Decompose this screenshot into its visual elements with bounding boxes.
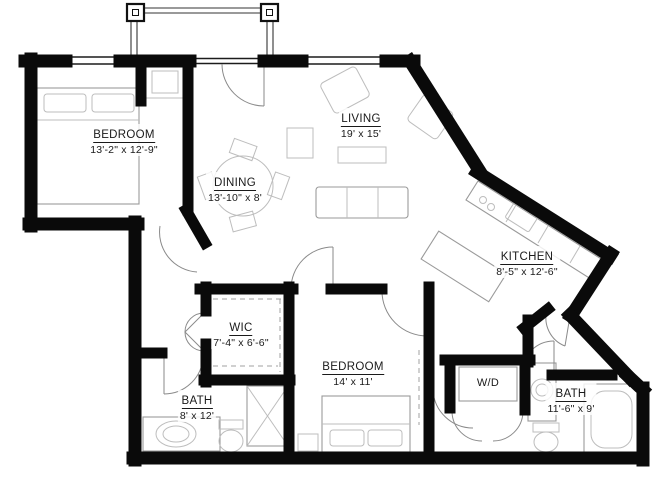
floor-plan: BEDROOM 13'-2" x 12'-9" LIVING 19' x 15'… xyxy=(0,0,670,480)
room-name: DINING xyxy=(214,176,256,191)
room-dims: 7'-4" x 6'-6" xyxy=(213,337,269,350)
room-name: BATH xyxy=(181,394,212,409)
room-dims: 14' x 11' xyxy=(322,376,384,389)
room-name: WIC xyxy=(229,321,252,336)
room-label-bath-2: BATH 11'-6" x 9' xyxy=(545,383,596,415)
room-label-bedroom-2: BEDROOM 14' x 11' xyxy=(320,356,386,388)
washer-dryer-label: W/D xyxy=(477,377,499,389)
room-name: KITCHEN xyxy=(501,250,554,265)
room-dims: 8'-5" x 12'-6" xyxy=(496,266,558,279)
room-label-bath-1: BATH 8' x 12' xyxy=(178,390,216,422)
room-name: LIVING xyxy=(341,112,381,127)
room-label-kitchen: KITCHEN 8'-5" x 12'-6" xyxy=(494,246,560,278)
windows xyxy=(65,57,388,64)
toilet xyxy=(219,420,243,429)
room-name: BEDROOM xyxy=(93,128,155,143)
room-dims: 13'-10" x 8' xyxy=(208,192,262,205)
room-dims: 11'-6" x 9' xyxy=(547,403,594,416)
room-name: BATH xyxy=(555,387,586,402)
room-label-bedroom-1: BEDROOM 13'-2" x 12'-9" xyxy=(88,124,160,156)
shower xyxy=(247,386,288,446)
room-dims: 8' x 12' xyxy=(180,410,214,423)
balcony-railing xyxy=(127,4,278,55)
toilet xyxy=(533,423,559,432)
room-label-living: LIVING 19' x 15' xyxy=(339,108,383,140)
bedroom-1-closet xyxy=(146,66,184,98)
room-label-wic: WIC 7'-4" x 6'-6" xyxy=(211,317,271,349)
room-name: BEDROOM xyxy=(322,360,384,375)
room-label-dining: DINING 13'-10" x 8' xyxy=(206,172,264,204)
room-dims: 19' x 15' xyxy=(341,128,381,141)
room-dims: 13'-2" x 12'-9" xyxy=(90,144,158,157)
